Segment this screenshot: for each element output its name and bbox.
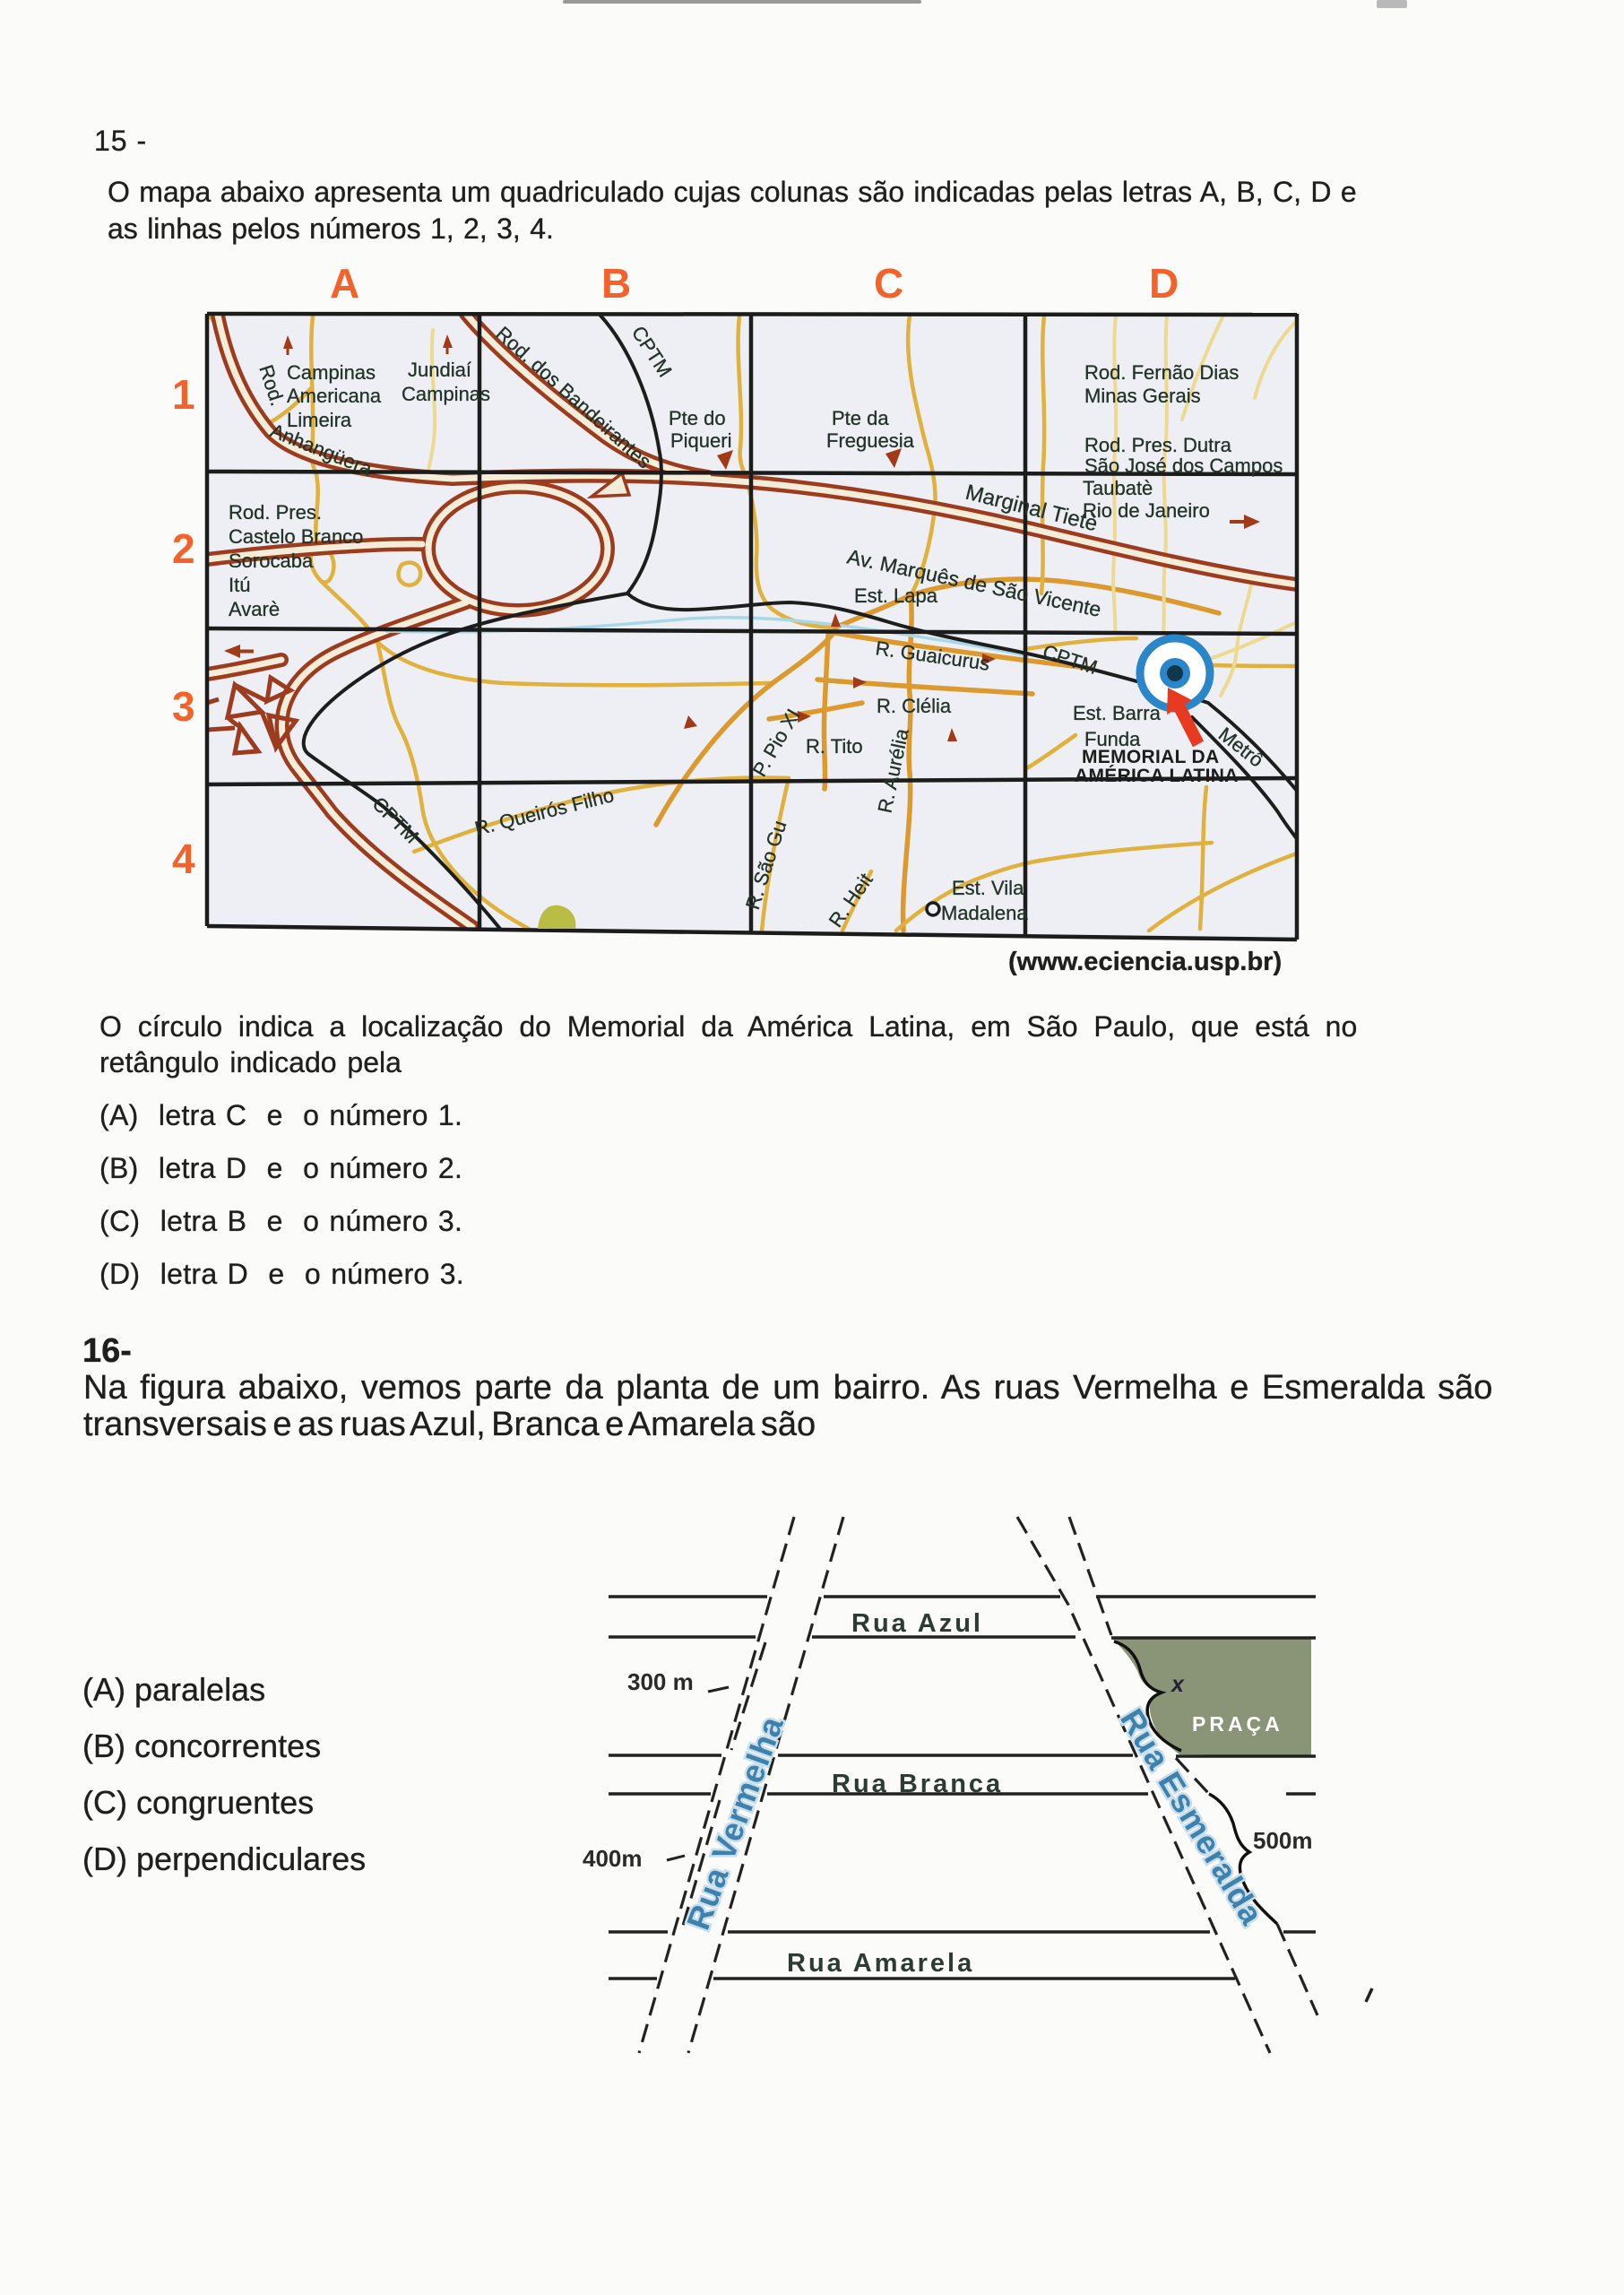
svg-text:300 m: 300 m: [627, 1668, 694, 1695]
svg-text:Pte da: Pte da: [832, 407, 889, 429]
svg-text:Rua Amarela: Rua Amarela: [787, 1949, 974, 1978]
svg-text:Campinas: Campinas: [287, 361, 376, 384]
svg-text:PRAÇA: PRAÇA: [1192, 1712, 1283, 1736]
svg-text:São José dos Campos: São José dos Campos: [1084, 455, 1283, 477]
svg-text:x: x: [1170, 1672, 1185, 1697]
svg-text:Rod. Pres.: Rod. Pres.: [229, 501, 322, 524]
svg-text:3: 3: [172, 683, 195, 730]
svg-text:1: 1: [172, 371, 195, 418]
svg-text:R. Clélia: R. Clélia: [877, 695, 952, 717]
svg-text:MEMORIAL DA: MEMORIAL DA: [1082, 747, 1219, 767]
svg-text:Est. Barra: Est. Barra: [1073, 702, 1162, 724]
svg-text:Campinas: Campinas: [402, 383, 490, 405]
svg-text:Minas Gerais: Minas Gerais: [1084, 385, 1201, 407]
svg-text:Rod. Fernão Dias: Rod. Fernão Dias: [1084, 361, 1239, 384]
svg-text:Avarè: Avarè: [229, 598, 280, 620]
svg-text:Est. Vila: Est. Vila: [952, 877, 1024, 899]
svg-text:Pte do: Pte do: [669, 407, 726, 429]
svg-text:Rua Branca: Rua Branca: [832, 1770, 1003, 1798]
svg-text:Piqueri: Piqueri: [670, 429, 731, 452]
svg-text:2: 2: [172, 525, 195, 572]
svg-text:C: C: [874, 260, 903, 307]
svg-text:Rua Azul: Rua Azul: [851, 1609, 983, 1638]
svg-text:R. Tito: R. Tito: [806, 735, 863, 758]
svg-text:Itú: Itú: [229, 574, 250, 596]
svg-text:Sorocaba: Sorocaba: [229, 550, 314, 572]
svg-text:Castelo Branco: Castelo Branco: [229, 525, 363, 548]
svg-text:A: A: [330, 260, 359, 307]
svg-text:Taubatè: Taubatè: [1083, 477, 1153, 499]
svg-text:AMÉRICA LATINA: AMÉRICA LATINA: [1075, 766, 1239, 786]
svg-text:Rua Vermelha: Rua Vermelha: [679, 1711, 790, 1935]
svg-text:Est. Lapa: Est. Lapa: [854, 585, 938, 607]
svg-text:Americana: Americana: [287, 385, 382, 407]
svg-text:Jundiaí: Jundiaí: [408, 359, 471, 381]
svg-text:Rod. Pres. Dutra: Rod. Pres. Dutra: [1084, 434, 1232, 456]
svg-text:400m: 400m: [583, 1845, 643, 1872]
svg-text:Freguesia: Freguesia: [826, 429, 915, 452]
svg-text:B: B: [601, 260, 631, 307]
svg-text:Madalena: Madalena: [941, 902, 1028, 924]
svg-text:Rio de Janeiro: Rio de Janeiro: [1083, 499, 1210, 522]
svg-text:D: D: [1149, 260, 1179, 307]
svg-text:4: 4: [172, 836, 195, 882]
svg-text:500m: 500m: [1253, 1827, 1313, 1854]
